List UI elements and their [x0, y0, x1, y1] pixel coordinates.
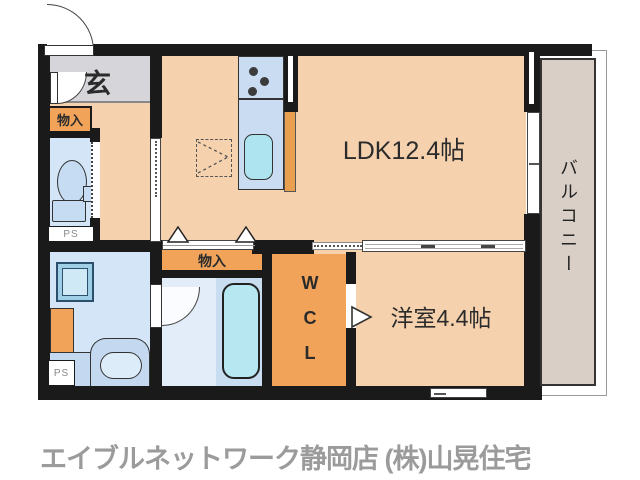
wall-wcl-right-lower — [346, 328, 356, 386]
ps-lower-label: PS — [54, 368, 69, 379]
floor-plan: バルコニー 玄 物入 PS PS — [0, 0, 640, 480]
wall-slit-right — [529, 52, 534, 104]
ldk-balcony-window — [527, 112, 540, 214]
wall-entrance-ldk — [150, 56, 162, 138]
window-meeting-rail — [529, 163, 539, 165]
storage-lower-label: 物入 — [198, 251, 226, 271]
window-meeting-rail-2 — [434, 393, 446, 395]
entrance-step-line — [58, 101, 150, 103]
wall-left — [38, 44, 50, 400]
ps-shaft-upper: PS — [48, 226, 94, 242]
western-room-window — [430, 388, 487, 398]
washing-machine — [62, 268, 88, 296]
stove-burner-2 — [260, 77, 269, 86]
entrance-door-arc — [47, 4, 94, 51]
entrance-door-leaf — [44, 45, 94, 56]
wcl-label: W C L — [298, 266, 322, 378]
storage-upper: 物入 — [48, 106, 92, 133]
refrigerator-space — [196, 139, 232, 177]
partition-line-1 — [365, 244, 523, 245]
corridor-sliding-door — [150, 138, 161, 242]
partition-handle-2 — [481, 245, 495, 248]
wall-wcl-right-upper — [346, 252, 356, 284]
stove-burner-3 — [248, 87, 257, 96]
kitchen-side-counter — [284, 110, 296, 192]
footer-caption: エイブルネットワーク静岡店 (株)山晃住宅 — [40, 437, 620, 476]
bathtub — [222, 283, 260, 379]
partition-sliding-doors — [362, 240, 526, 252]
wall-top — [38, 44, 592, 56]
ps-shaft-lower: PS — [48, 360, 75, 386]
ps-upper-label: PS — [63, 229, 78, 240]
ldk-label: LDK12.4帖 — [334, 134, 474, 164]
entrance-label: 玄 — [84, 62, 111, 101]
wall-storage-bath — [158, 270, 266, 278]
western-room-label: 洋室4.4帖 — [361, 302, 521, 330]
toilet-folding-door — [91, 142, 100, 218]
balcony-label: バルコニー — [551, 158, 581, 378]
storage-upper-label: 物入 — [57, 110, 83, 129]
refrigerator-space-mark — [197, 140, 230, 175]
kitchen-counter-divider — [238, 98, 284, 100]
bath-door-leaf — [150, 284, 162, 328]
wall-slit-kitchen — [288, 56, 293, 102]
partition-line-2 — [365, 248, 523, 249]
closet-door-line — [163, 245, 255, 246]
stove-burner-1 — [249, 67, 258, 76]
kitchen-sink — [244, 134, 273, 180]
wall-right-lower — [524, 214, 540, 390]
wall-bath-wcl — [262, 248, 272, 386]
partition-dash-line — [314, 245, 362, 247]
partition-handle-1 — [421, 245, 435, 248]
closet-door-triangle-left — [166, 226, 190, 243]
toilet-tank — [52, 200, 86, 222]
partition-dashed-panel — [312, 242, 364, 250]
closet-door-triangle-right — [234, 226, 258, 243]
hall-door-leaf — [50, 72, 58, 104]
sliding-door-track — [155, 141, 157, 197]
vanity-sink — [100, 352, 142, 379]
washroom-cabinet — [50, 308, 74, 358]
